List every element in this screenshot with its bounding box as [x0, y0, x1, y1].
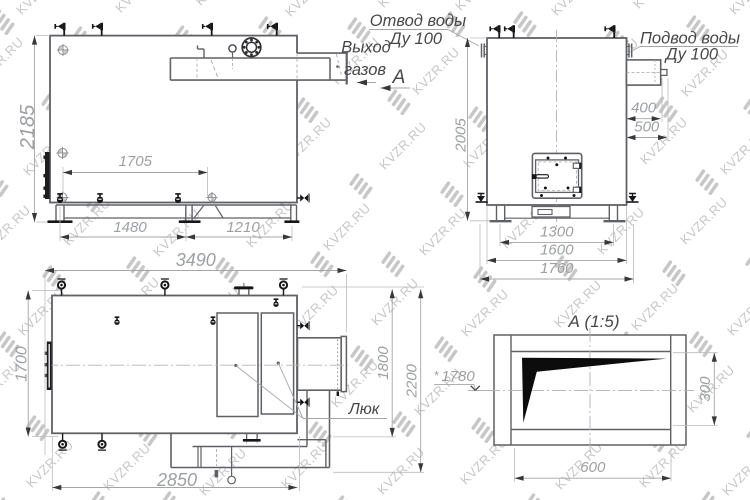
svg-text:Ду 100: Ду 100: [664, 46, 719, 64]
svg-text:1705: 1705: [119, 153, 153, 170]
svg-text:1780: 1780: [441, 368, 475, 385]
svg-text:1600: 1600: [540, 241, 574, 258]
svg-text:Люк: Люк: [348, 401, 381, 418]
svg-text:2185: 2185: [17, 104, 39, 150]
svg-text:400: 400: [631, 100, 657, 117]
svg-text:А: А: [392, 67, 406, 88]
svg-text:А (1:5): А (1:5): [567, 312, 619, 331]
svg-text:2200: 2200: [404, 363, 421, 398]
svg-text:Отвод воды: Отвод воды: [370, 12, 466, 30]
svg-text:1760: 1760: [540, 260, 574, 277]
svg-text:Ду 100: Ду 100: [388, 30, 443, 48]
svg-text:1300: 1300: [540, 223, 574, 240]
svg-text:1480: 1480: [113, 219, 147, 236]
svg-text:2850: 2850: [156, 470, 197, 490]
svg-text:300: 300: [697, 376, 714, 402]
svg-text:500: 500: [634, 119, 660, 136]
svg-text:600: 600: [580, 459, 606, 476]
svg-text:1210: 1210: [226, 219, 260, 236]
svg-text:газов: газов: [344, 61, 386, 79]
svg-text:1700: 1700: [14, 346, 31, 382]
svg-text:2005: 2005: [453, 118, 470, 153]
svg-text:1800: 1800: [375, 346, 392, 380]
svg-text:3490: 3490: [176, 250, 216, 270]
svg-text:Выход: Выход: [341, 39, 391, 57]
